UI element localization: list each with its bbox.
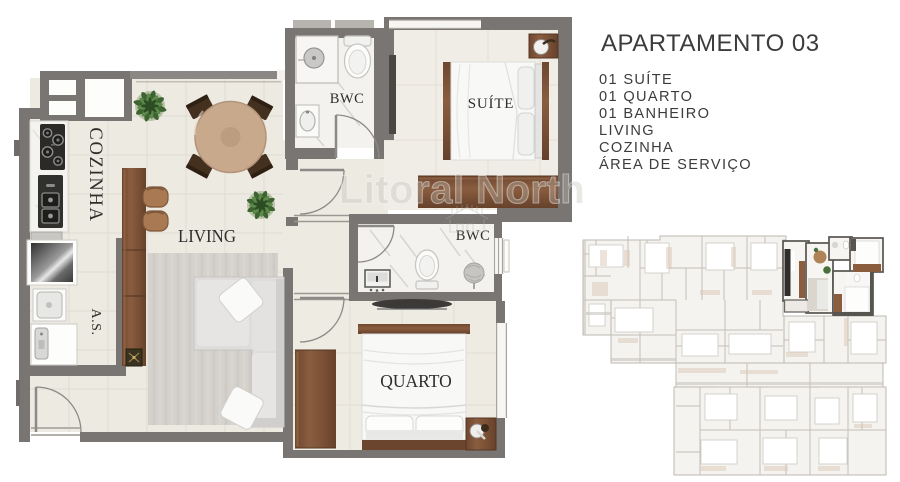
svg-text:01 SUÍTE: 01 SUÍTE — [599, 71, 673, 88]
svg-text:A.S.: A.S. — [88, 309, 103, 336]
svg-text:LIVING: LIVING — [599, 123, 655, 139]
svg-text:LIVING: LIVING — [178, 226, 236, 246]
svg-text:Litoral North: Litoral North — [339, 168, 585, 212]
svg-text:QUARTO: QUARTO — [380, 371, 452, 391]
svg-text:COZINHA: COZINHA — [599, 140, 674, 156]
svg-text:01 QUARTO: 01 QUARTO — [599, 89, 693, 105]
svg-text:APARTAMENTO 03: APARTAMENTO 03 — [601, 30, 820, 57]
svg-text:ÁREA DE SERVIÇO: ÁREA DE SERVIÇO — [599, 156, 752, 173]
svg-text:BWC: BWC — [330, 91, 365, 107]
svg-text:COZINHA: COZINHA — [85, 127, 105, 222]
svg-text:SUÍTE: SUÍTE — [468, 95, 515, 112]
svg-text:01 BANHEIRO: 01 BANHEIRO — [599, 106, 710, 122]
